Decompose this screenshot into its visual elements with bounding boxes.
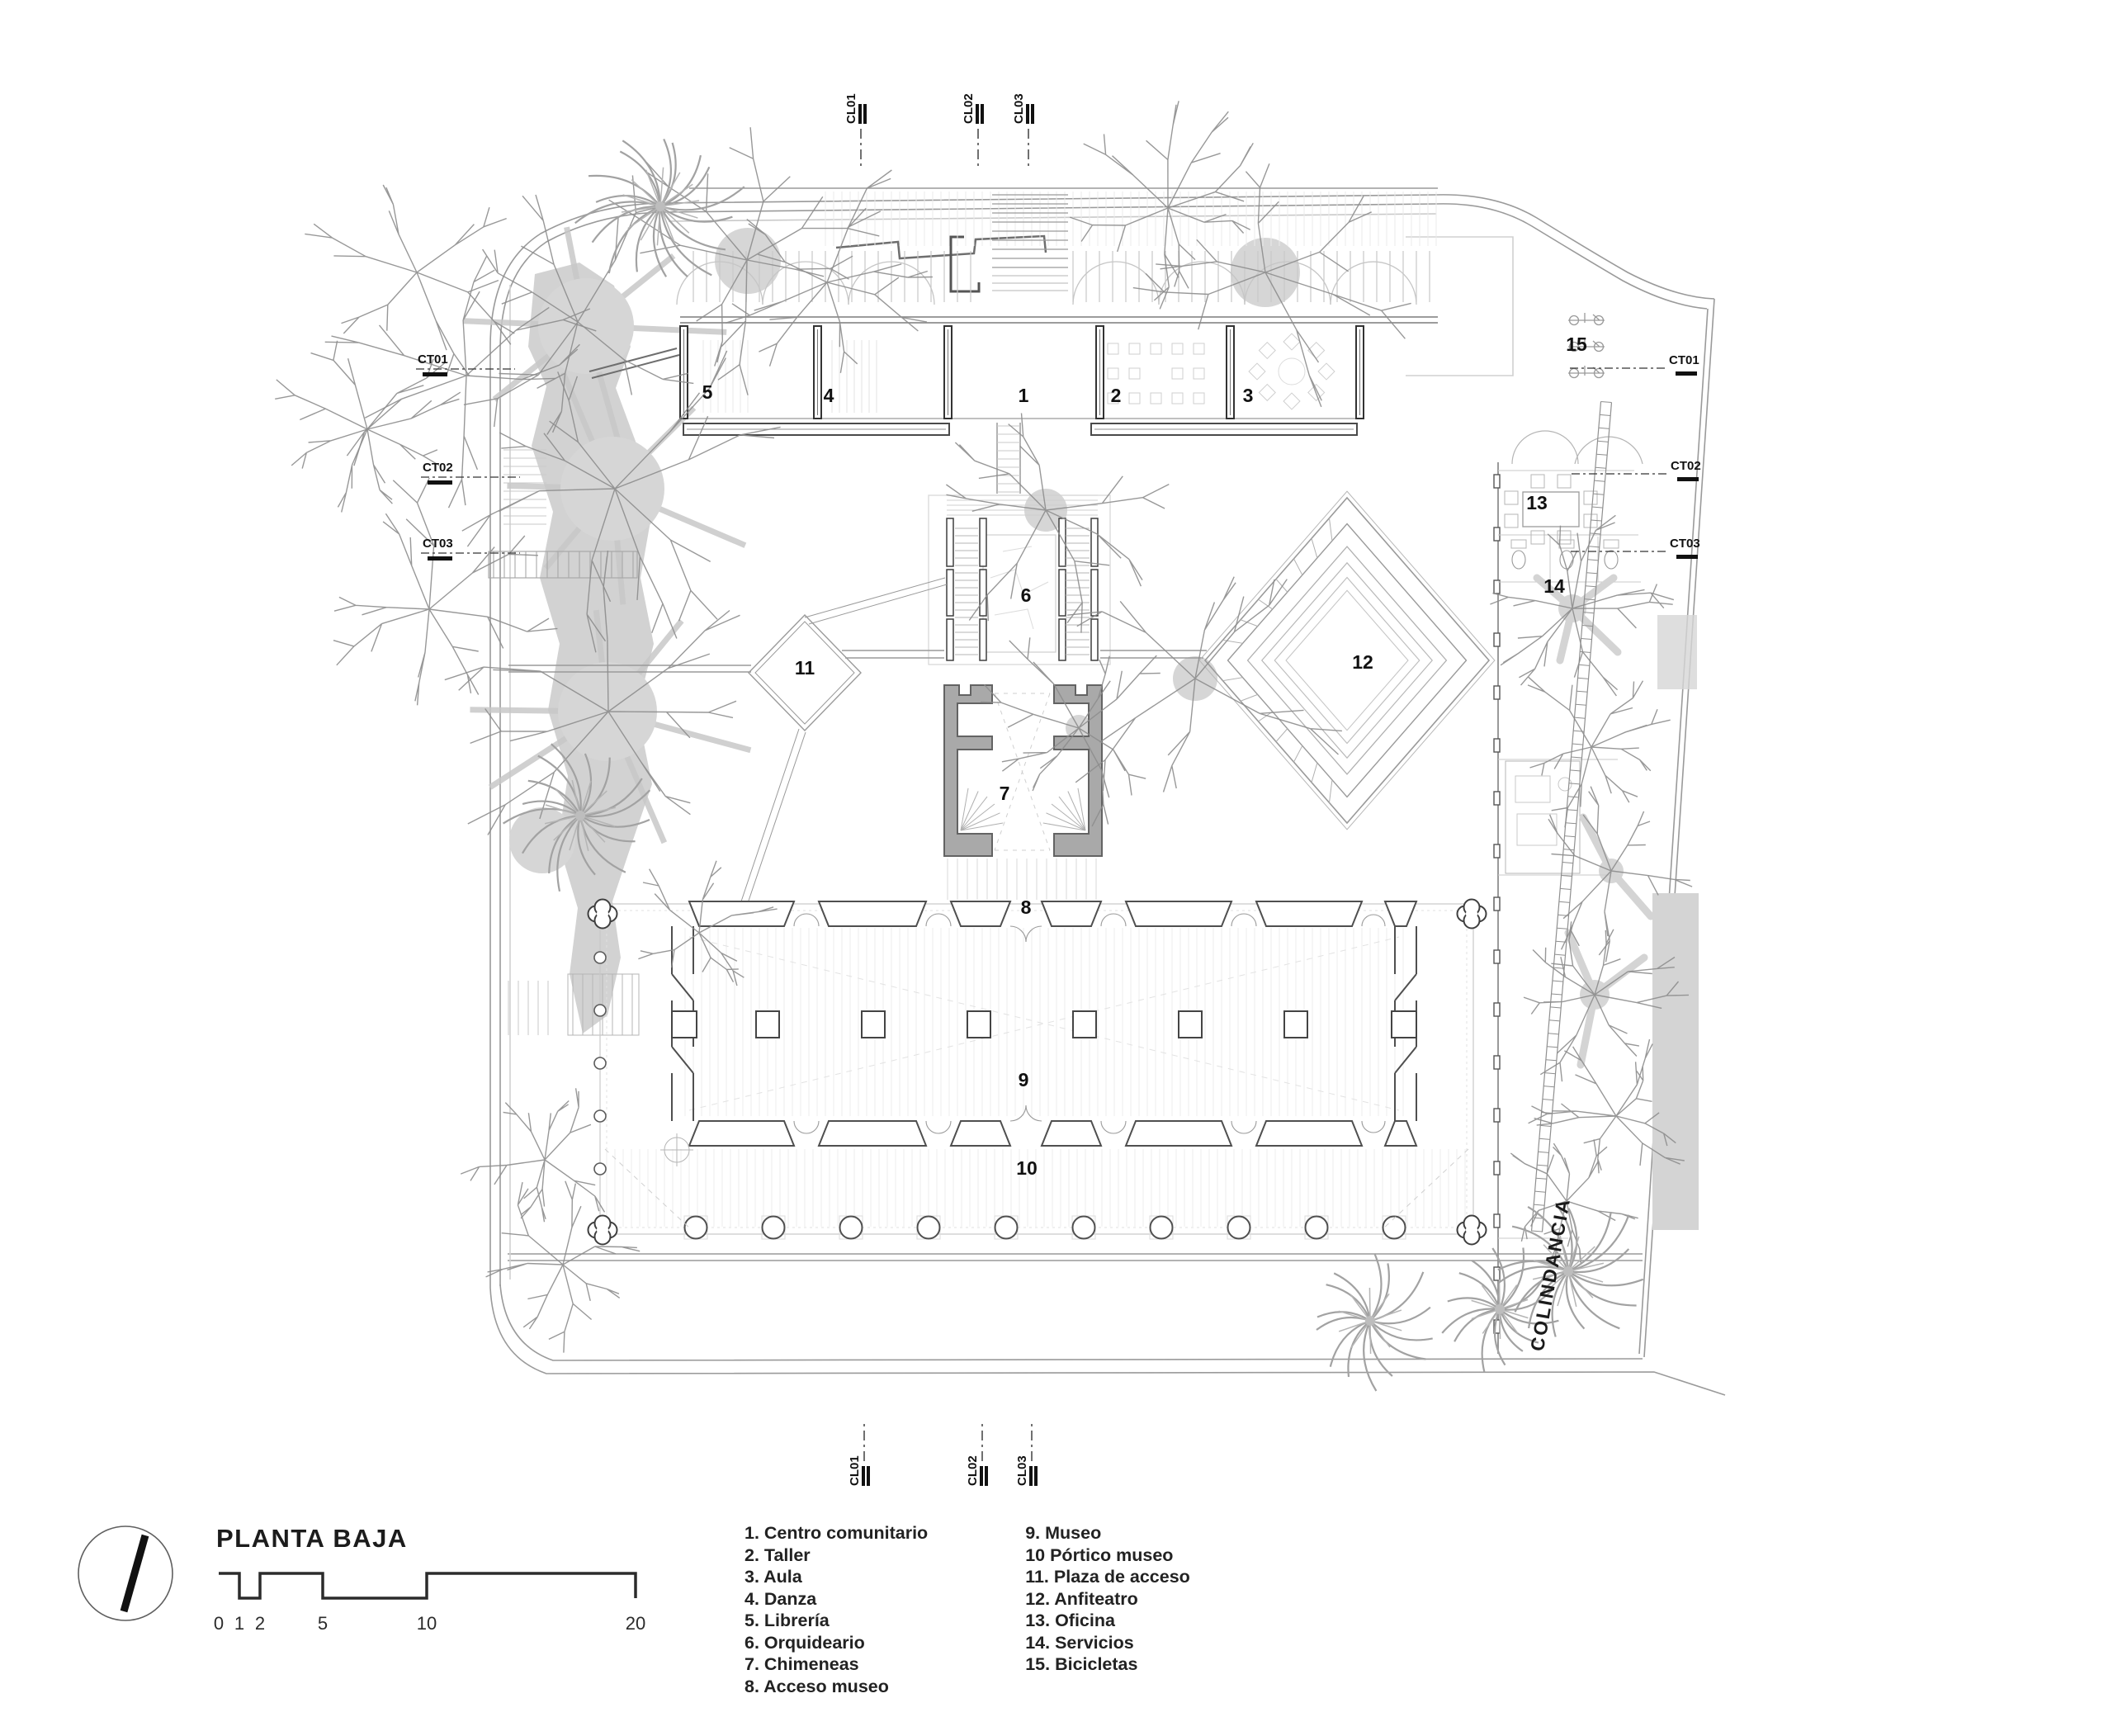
museum-pier-top (1042, 901, 1101, 926)
section-marker-bar (862, 1466, 865, 1486)
amphitheater-seat-tick (1330, 780, 1332, 803)
strip-wall-post (1494, 686, 1500, 699)
amphitheater-seat-tick (1241, 694, 1258, 701)
door-arc-top (926, 914, 951, 926)
legend-item: 8. Acceso museo (745, 1676, 928, 1698)
section-marker-top: CL03 (1012, 93, 1034, 167)
museum-pier-top (1126, 901, 1231, 926)
section-marker-bottom: CL03 (1015, 1421, 1038, 1486)
strip-wall-post (1494, 1003, 1500, 1016)
palm-trunk (655, 201, 665, 211)
office-chair (1531, 475, 1544, 488)
orquideario-connector (997, 423, 1020, 494)
chimney-right (1054, 685, 1102, 856)
plan-label-4: 4 (824, 385, 834, 406)
section-marker-bottom: CL02 (966, 1421, 988, 1486)
amphitheater-seat-tick (1294, 745, 1302, 762)
plan-label-12: 12 (1352, 651, 1373, 673)
plan-label-8: 8 (1021, 896, 1032, 918)
quatrefoil-center (1466, 908, 1477, 920)
amphitheater-seat-tick (1294, 559, 1302, 575)
section-marker-label: CT02 (1671, 459, 1701, 473)
legend-item: 6. Orquideario (745, 1632, 928, 1654)
title-block: PLANTA BAJA (216, 1524, 408, 1554)
planter-hatch-2 (508, 981, 548, 1035)
strip-wall-post (1494, 1161, 1500, 1175)
floor-plan-canvas: CL01CL02CL03CL01CL02CL03CT01CT02CT03CT01… (0, 0, 2113, 1736)
shrub-arcs (1512, 431, 1643, 464)
section-marker-label: CL02 (966, 1455, 980, 1486)
scale-tick-label: 5 (318, 1613, 328, 1634)
strip-wall-post (1494, 792, 1500, 805)
chimney-left (944, 685, 992, 856)
workshop-table (1108, 343, 1118, 354)
museum-pier-top (819, 901, 926, 926)
trees (275, 101, 1692, 1352)
section-marker-bar (1026, 104, 1029, 124)
scale-bar-line (219, 1573, 636, 1598)
north-arrow-needle (124, 1535, 145, 1611)
office-chair (1505, 491, 1518, 504)
palm-trunk (575, 811, 585, 821)
portico-column (685, 1217, 707, 1239)
branch-tree (1510, 1139, 1638, 1264)
section-marker-bar (1029, 1466, 1033, 1486)
legend-item: 15. Bicicletas (1025, 1653, 1190, 1676)
museum-column (1179, 1011, 1202, 1038)
toilet-fixture (1605, 551, 1618, 569)
museum-column-stub (1392, 1011, 1416, 1038)
section-marker-bar (1677, 477, 1699, 481)
quatrefoil-center (597, 908, 608, 920)
museum-column (1073, 1011, 1096, 1038)
path-south (741, 729, 806, 903)
section-marker-bar (1031, 104, 1034, 124)
branch-tree (1528, 677, 1671, 827)
section-marker-bar (423, 372, 447, 376)
amphitheater (1199, 491, 1495, 830)
workshop-table (1151, 393, 1161, 404)
door-arc-top (1101, 914, 1126, 926)
section-marker-top: CL02 (962, 93, 984, 167)
strip-wall-post (1494, 527, 1500, 541)
orquideario-fin (1091, 570, 1098, 616)
fan-stair-left (961, 823, 1003, 830)
section-marker-bar (428, 480, 452, 485)
portico-column (918, 1217, 940, 1239)
section-marker-label: CL01 (844, 93, 858, 124)
portico-column (763, 1217, 785, 1239)
portico-column (1228, 1217, 1250, 1239)
section-marker-bar (858, 104, 862, 124)
section-marker-label: CL01 (848, 1455, 862, 1486)
orquideario-fin (947, 570, 953, 616)
orquideario-stair-right (1066, 528, 1090, 655)
office-chair (1558, 475, 1571, 488)
workshop-table (1108, 368, 1118, 379)
legend-item: 1. Centro comunitario (745, 1522, 928, 1544)
classroom-desk (1259, 343, 1275, 359)
palm-trunk (1495, 1304, 1505, 1314)
plan-label-9: 9 (1019, 1069, 1029, 1090)
garden-path (1572, 578, 1614, 608)
workshop-table (1129, 343, 1140, 354)
door-arc-top (1362, 915, 1385, 926)
door-arc-bottom (794, 1121, 819, 1133)
orquideario-fin (980, 518, 986, 566)
dance-room-shelves (832, 340, 877, 413)
portico-column (840, 1217, 863, 1239)
section-marker-bar (867, 1466, 870, 1486)
terrace-column (594, 1005, 606, 1016)
portico-column (1151, 1217, 1173, 1239)
door-arc-bottom (1101, 1121, 1126, 1133)
door-arc-top (1231, 914, 1256, 926)
scale-tick-label: 10 (417, 1613, 437, 1634)
path-east (842, 650, 1207, 658)
legend-item: 4. Danza (745, 1588, 928, 1611)
orquideario-fin (947, 619, 953, 660)
classroom-desk (1318, 363, 1335, 380)
plan-label-11: 11 (795, 657, 815, 679)
tree-canopy (715, 228, 781, 294)
office-chair (1531, 531, 1544, 544)
door-arc-bottom (926, 1121, 951, 1133)
strip-wall-post (1494, 1056, 1500, 1069)
garden-channel (1652, 893, 1699, 1230)
door-arc-bottom (1231, 1121, 1256, 1133)
legend-item: 9. Museo (1025, 1522, 1190, 1544)
terrace-column (594, 1057, 606, 1069)
north-arrow (78, 1526, 173, 1620)
sink-fixture (1511, 540, 1526, 548)
workshop-table (1129, 368, 1140, 379)
museum-pier-bottom (1385, 1121, 1416, 1146)
plan-label-13: 13 (1526, 492, 1548, 513)
strip-wall-post (1494, 897, 1500, 911)
legend-item: 2. Taller (745, 1544, 928, 1567)
section-marker-bar (976, 104, 979, 124)
strip-wall-post (1494, 633, 1500, 646)
museum-pier-top (1256, 901, 1362, 926)
plan-label-14: 14 (1543, 575, 1565, 597)
orquideario-fin (1091, 619, 1098, 660)
workshop-table (1194, 343, 1204, 354)
section-marker-bar (985, 1466, 988, 1486)
strip-wall-post (1494, 475, 1500, 488)
workshop-table (1194, 393, 1204, 404)
benchmark-cross (660, 1133, 693, 1166)
museum-pier-bottom (1256, 1121, 1362, 1146)
section-marker-label: CT03 (1670, 537, 1700, 551)
classroom-desk (1283, 393, 1300, 409)
museum-pier-bottom (1042, 1121, 1101, 1146)
orquideario-top-hatch (947, 495, 1098, 515)
section-marker-bar (1676, 555, 1698, 559)
terrace-column (594, 1163, 606, 1175)
terrace-column (594, 952, 606, 963)
legend: 1. Centro comunitario2. Taller3. Aula4. … (745, 1522, 1190, 1697)
quatrefoil-center (1466, 1224, 1477, 1236)
orquideario-fin (947, 518, 953, 566)
entry-stair-brick (992, 276, 1068, 291)
palm-trunk (1365, 1316, 1375, 1326)
orquideario-fin (980, 570, 986, 616)
community-building (589, 188, 1438, 435)
sink-fixture (1604, 540, 1619, 548)
door-arc-bottom (1362, 1121, 1385, 1133)
plan-label-6: 6 (1021, 584, 1032, 606)
path-northeast (805, 578, 947, 624)
plan-label-1: 1 (1019, 385, 1029, 406)
terrace-column (594, 1110, 606, 1122)
plan-label-3: 3 (1243, 385, 1254, 406)
section-marker-label: CL03 (1012, 93, 1026, 124)
amphitheater-seat-tick (1276, 729, 1288, 742)
office-chair (1505, 514, 1518, 527)
museum (589, 900, 1487, 1245)
bicycle-icon (1568, 366, 1605, 376)
museum-pier-top (1385, 901, 1416, 926)
museum-pier-bottom (689, 1121, 794, 1146)
plan-label-15: 15 (1566, 333, 1587, 355)
door-arc-top (794, 914, 819, 926)
legend-column-2: 9. Museo10 Pórtico museo11. Plaza de acc… (1025, 1522, 1190, 1697)
garden-path (1611, 871, 1651, 916)
legend-item: 7. Chimeneas (745, 1653, 928, 1676)
legend-column-1: 1. Centro comunitario2. Taller3. Aula4. … (745, 1522, 928, 1697)
section-marker-bottom: CL01 (848, 1421, 870, 1486)
orquideario-ramp-hatch (997, 426, 1020, 492)
section-marker-label: CT03 (423, 537, 453, 551)
scale-tick-label: 20 (626, 1613, 645, 1634)
orquideario-fin (1091, 518, 1098, 566)
section-marker-label: CT02 (423, 461, 453, 475)
amphitheater-ring (1199, 491, 1495, 830)
portico-column (1073, 1217, 1095, 1239)
branch-tree (486, 1181, 641, 1353)
fan-stair-left (961, 788, 968, 830)
plan-label-2: 2 (1111, 385, 1122, 406)
orquideario-core (983, 535, 1056, 652)
garden-patch (1657, 615, 1697, 689)
museum-column-stub (672, 1011, 697, 1038)
workshop-table (1194, 368, 1204, 379)
scale-bar: 01251020 (214, 1573, 645, 1634)
garden-path (1572, 608, 1618, 652)
palm-trees (503, 139, 1643, 1391)
museum-pier-top (951, 901, 1010, 926)
workshop-table (1172, 343, 1183, 354)
section-marker-left: CT03 (421, 537, 520, 561)
tree-canopy (538, 278, 634, 374)
orquideario-fin (1059, 570, 1066, 616)
museum-column (967, 1011, 990, 1038)
museum-terrace-inner (607, 911, 1467, 1227)
section-marker-bar (428, 556, 452, 561)
quatrefoil-center (597, 1224, 608, 1236)
portico-column (1383, 1217, 1406, 1239)
palm-frond (1370, 1272, 1423, 1321)
amphitheater-ring (1228, 524, 1467, 797)
workshop-table (1129, 393, 1140, 404)
branch-tree (461, 1088, 604, 1222)
branch-tree (1490, 515, 1674, 696)
amphitheater-seat-tick (1330, 518, 1332, 542)
section-marker-left: CT02 (421, 461, 520, 485)
orquideario-fin (980, 619, 986, 660)
palm-trunk (1563, 1266, 1573, 1276)
museum-column (862, 1011, 885, 1038)
orquideario (929, 423, 1110, 665)
portico-column (1306, 1217, 1328, 1239)
section-marker-top: CL01 (844, 93, 867, 167)
legend-item: 12. Anfiteatro (1025, 1588, 1190, 1611)
scale-tick-label: 2 (255, 1613, 265, 1634)
strip-wall-post (1494, 739, 1500, 752)
fan-stair-right (1078, 788, 1085, 830)
bicycle-icon (1568, 313, 1605, 323)
scale-tick-label: 1 (234, 1613, 244, 1634)
scale-bar-ticks: 01251020 (214, 1613, 645, 1634)
legend-item: 13. Oficina (1025, 1610, 1190, 1632)
legend-item: 14. Servicios (1025, 1632, 1190, 1654)
legend-item: 11. Plaza de acceso (1025, 1566, 1190, 1588)
section-marker-label: CL02 (962, 93, 976, 124)
office-chair (1584, 491, 1597, 504)
toilet-fixture (1512, 551, 1525, 569)
legend-item: 10 Pórtico museo (1025, 1544, 1190, 1567)
legend-item: 3. Aula (745, 1566, 928, 1588)
section-marker-bar (980, 1466, 983, 1486)
orquideario-fin (1059, 619, 1066, 660)
amphitheater-seat-tick (1223, 678, 1243, 681)
plan-label-5: 5 (702, 381, 713, 403)
workshop-table (1172, 368, 1183, 379)
front-walk (508, 1254, 1643, 1261)
orquideario-stair-left (955, 528, 978, 655)
portico-column (995, 1217, 1018, 1239)
strip-wall-post (1494, 1214, 1500, 1227)
museum-pier-bottom (819, 1121, 926, 1146)
museum-approach-hatch (948, 859, 1096, 900)
section-marker-bar (863, 104, 867, 124)
classroom-desk (1259, 385, 1275, 401)
museum-column (1284, 1011, 1307, 1038)
page-title: PLANTA BAJA (216, 1524, 408, 1554)
fan-stair-right (1043, 823, 1085, 830)
section-marker-right: CT01 (1570, 353, 1699, 376)
service-fixture (1515, 776, 1550, 802)
workshop-table (1172, 393, 1183, 404)
service-fixture (1517, 814, 1557, 845)
palm-frond-inner (1369, 1288, 1370, 1321)
plan-number-labels: 123456789101112131415 (702, 333, 1587, 1179)
palm-frond (1454, 1309, 1500, 1341)
palm-frond (1326, 1284, 1370, 1321)
amphitheater-seat-tick (1312, 538, 1317, 558)
strip-wall-post (1494, 950, 1500, 963)
scale-tick-label: 0 (214, 1613, 224, 1634)
museum-pier-bottom (1126, 1121, 1231, 1146)
plan-label-10: 10 (1016, 1157, 1038, 1179)
section-marker-label: CL03 (1015, 1455, 1029, 1486)
amphitheater-seat-tick (1312, 763, 1317, 783)
section-marker-right: CT03 (1571, 537, 1700, 559)
legend-item: 5. Librería (745, 1610, 928, 1632)
strip-wall-post (1494, 844, 1500, 858)
museum-pier-bottom (951, 1121, 1010, 1146)
classroom-desk (1283, 333, 1300, 350)
section-marker-label: CT01 (418, 352, 448, 367)
strip-wall-post (1494, 1109, 1500, 1122)
workshop-table (1151, 343, 1161, 354)
classroom-desk (1249, 363, 1265, 380)
section-marker-bar (981, 104, 984, 124)
classroom-center (1279, 358, 1305, 385)
amphitheater-ring (1274, 578, 1419, 744)
section-marker-bar (1676, 371, 1697, 376)
community-building-detail (677, 192, 1436, 419)
museum-terrace (600, 904, 1473, 1234)
museum-column (756, 1011, 779, 1038)
section-marker-label: CT01 (1669, 353, 1699, 367)
plan-label-7: 7 (1000, 783, 1010, 804)
section-marker-bar (1034, 1466, 1038, 1486)
